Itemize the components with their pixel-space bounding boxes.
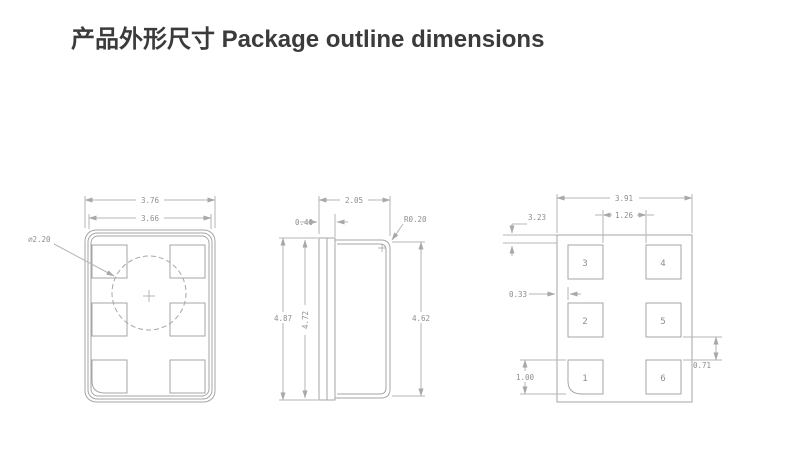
dim-label-pad-height: 1.00 <box>516 373 535 382</box>
pad-number: 6 <box>660 374 665 384</box>
pad-shape <box>92 303 127 336</box>
lid-seam <box>337 244 386 394</box>
pad-shape <box>170 360 205 393</box>
center-cross <box>143 290 155 302</box>
extension-lines <box>503 235 557 243</box>
package-outline-inner <box>91 236 209 396</box>
dim-label-inner-width: 3.66 <box>141 214 160 223</box>
dim-label-lid-height: 4.62 <box>412 314 430 323</box>
pattern-outline <box>557 235 692 402</box>
dim-label-inner-height: 4.72 <box>301 311 310 329</box>
dim-label-edge-offset: 0.33 <box>509 290 527 299</box>
dim-label-body-width: 2.05 <box>345 196 363 205</box>
page: 产品外形尺寸 Package outline dimensions 3.76 <box>0 0 798 474</box>
pad-number: 2 <box>582 317 587 327</box>
pad-shape-chamfered <box>92 360 127 393</box>
pad-shape <box>170 245 205 278</box>
package-outline-drawing: 3.76 3.66 ∅2.20 2.05 0.40 <box>0 0 798 474</box>
dim-label-pad-gap-x: 1.26 <box>615 211 634 220</box>
dim-label-outer-width: 3.76 <box>141 196 160 205</box>
pad-number: 5 <box>660 317 665 327</box>
land-pattern-view: 3 4 2 5 1 6 3.91 1.26 3.23 0.33 <box>503 192 722 402</box>
package-outline-middle <box>88 233 212 399</box>
dim-label-overall-height: 4.87 <box>274 314 292 323</box>
leader-line-corner-radius <box>392 224 403 240</box>
package-outline-outer <box>85 230 215 402</box>
dim-label-corner-radius: R0.20 <box>404 215 427 224</box>
body-outline <box>335 240 390 398</box>
side-view: 2.05 0.40 R0.20 4.87 4.72 4.62 <box>270 194 434 400</box>
top-view: 3.76 3.66 ∅2.20 <box>28 194 215 402</box>
leader-line-circle-diameter <box>54 244 114 276</box>
pad-number: 4 <box>660 259 665 269</box>
pad-shape <box>170 303 205 336</box>
dim-label-circle-diameter: ∅2.20 <box>28 235 51 244</box>
dim-label-pad-gap-y: 0.71 <box>693 361 711 370</box>
pad-number: 3 <box>582 259 587 269</box>
pad-number: 1 <box>582 374 587 384</box>
dim-label-top-offset: 3.23 <box>528 213 546 222</box>
dim-label-overall-width: 3.91 <box>615 194 633 203</box>
